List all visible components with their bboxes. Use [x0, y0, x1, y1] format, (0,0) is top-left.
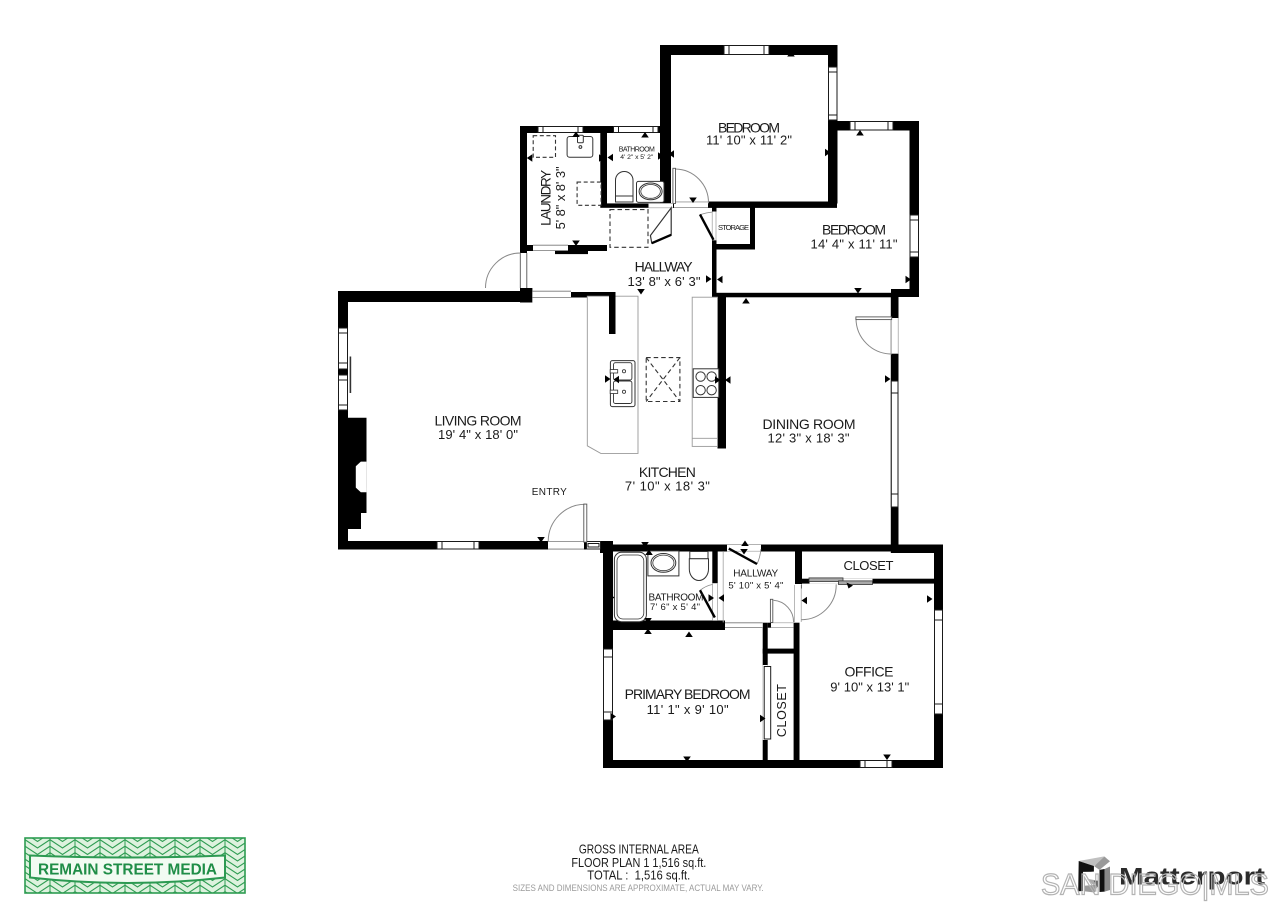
- svg-text:7' 10" x 18' 3": 7' 10" x 18' 3": [625, 479, 710, 494]
- svg-text:LAUNDRY: LAUNDRY: [539, 170, 554, 226]
- svg-text:19' 4" x 18' 0": 19' 4" x 18' 0": [438, 427, 518, 442]
- svg-text:14' 4" x 11' 11": 14' 4" x 11' 11": [811, 236, 898, 251]
- svg-text:9' 10" x 13' 1": 9' 10" x 13' 1": [830, 680, 909, 695]
- svg-text:BATHROOM: BATHROOM: [619, 147, 655, 154]
- svg-text:TOTAL : 1,516 sq.ft.: TOTAL : 1,516 sq.ft.: [587, 868, 690, 883]
- svg-text:CLOSET: CLOSET: [775, 684, 789, 737]
- svg-text:ENTRY: ENTRY: [532, 487, 567, 498]
- svg-text:11' 1" x 9' 10": 11' 1" x 9' 10": [647, 702, 729, 717]
- svg-text:13' 8" x 6' 3": 13' 8" x 6' 3": [628, 274, 701, 289]
- svg-text:5' 10" x 5' 4": 5' 10" x 5' 4": [728, 581, 783, 592]
- svg-text:HALLWAY: HALLWAY: [733, 569, 778, 580]
- svg-text:STORAGE: STORAGE: [718, 223, 749, 232]
- svg-text:12' 3" x 18' 3": 12' 3" x 18' 3": [768, 431, 850, 446]
- svg-text:REMAIN STREET MEDIA: REMAIN STREET MEDIA: [38, 862, 217, 879]
- svg-text:11' 10" x 11' 2": 11' 10" x 11' 2": [706, 132, 792, 147]
- svg-text:HALLWAY: HALLWAY: [635, 258, 694, 274]
- svg-text:KITCHEN: KITCHEN: [639, 464, 696, 480]
- svg-text:DINING ROOM: DINING ROOM: [763, 416, 856, 432]
- svg-text:7' 6" x 5' 4": 7' 6" x 5' 4": [650, 602, 700, 613]
- svg-text:SIZES AND DIMENSIONS ARE APPRO: SIZES AND DIMENSIONS ARE APPROXIMATE, AC…: [513, 882, 764, 893]
- svg-text:5' 8" x 8' 3": 5' 8" x 8' 3": [553, 166, 568, 229]
- svg-text:4' 2" x 5' 2": 4' 2" x 5' 2": [620, 154, 654, 161]
- svg-text:CLOSET: CLOSET: [844, 558, 894, 573]
- svg-text:SAN DIEGO|MLS: SAN DIEGO|MLS: [1041, 868, 1269, 902]
- svg-text:BEDROOM: BEDROOM: [822, 221, 886, 237]
- svg-text:PRIMARY BEDROOM: PRIMARY BEDROOM: [625, 686, 751, 702]
- svg-text:OFFICE: OFFICE: [845, 664, 894, 680]
